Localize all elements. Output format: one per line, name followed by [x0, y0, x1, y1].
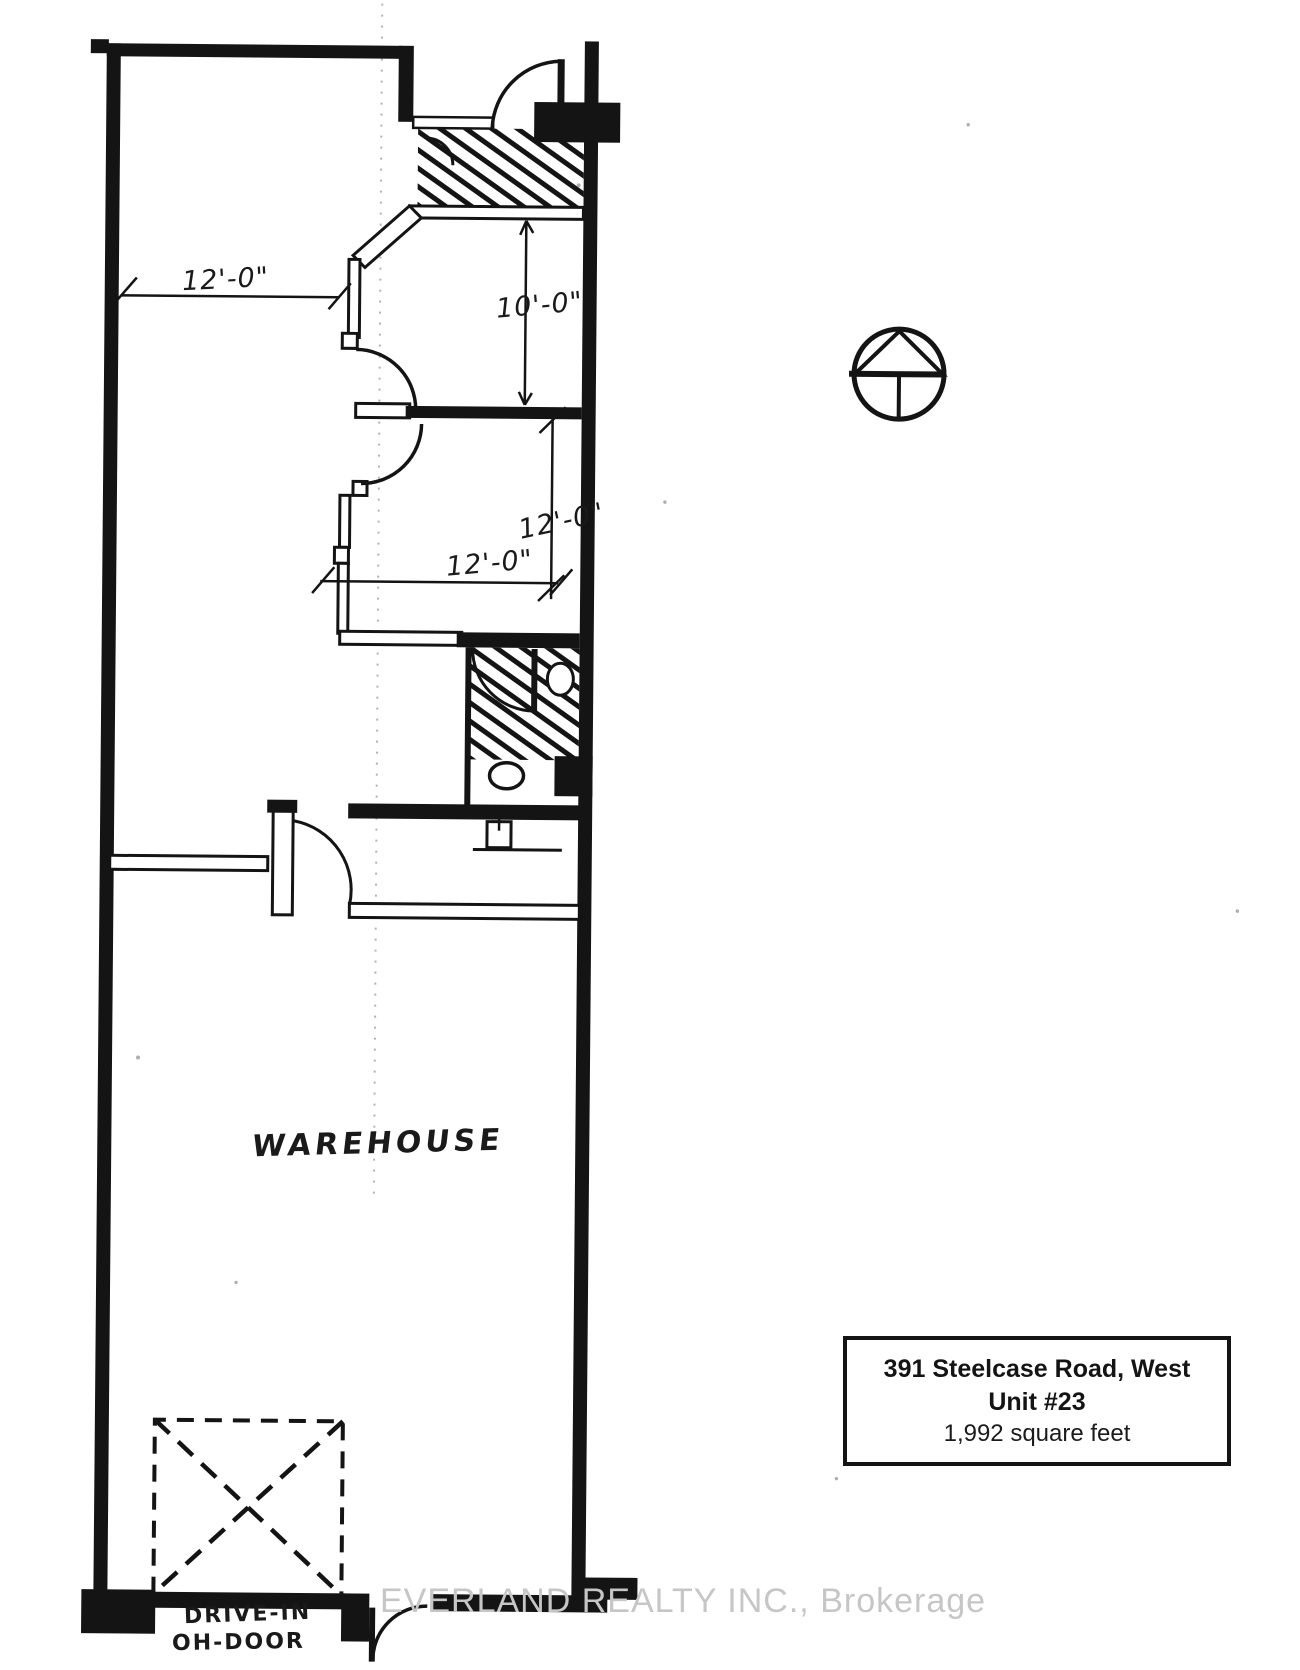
office2-left-wall-post	[334, 547, 348, 563]
left-wall	[93, 43, 121, 1599]
corridor-top-wall	[348, 803, 580, 820]
utility-nook-wall	[473, 849, 562, 850]
dim-office2-width-line	[320, 581, 558, 583]
drive-in-door-label-line2: OH-DOOR	[172, 1629, 305, 1656]
scan-crease-line	[372, 4, 384, 1198]
dimension-label-front-width: 12'-0"	[181, 262, 270, 298]
vestibule-bottom-wall	[409, 206, 583, 220]
toilet-fixture	[547, 663, 573, 695]
warehouse-room-label: WAREHOUSE	[250, 1123, 506, 1165]
top-right-wall-stub	[398, 46, 414, 122]
office2-left-wall-upper	[339, 495, 349, 547]
office1-left-wall	[348, 259, 360, 337]
office2-left-wall-lower	[338, 563, 349, 633]
property-info-box: 391 Steelcase Road, West Unit #23 1,992 …	[843, 1336, 1231, 1466]
north-arrow-icon	[849, 329, 946, 420]
property-address: 391 Steelcase Road, West	[884, 1354, 1191, 1384]
warehouse-north-wall-right	[349, 903, 579, 919]
washroom-door-leaf	[531, 649, 538, 711]
drive-in-door-label-line1: DRIVE-IN	[184, 1600, 312, 1629]
office2-bottom-wall	[340, 631, 462, 645]
north-arrow-triangle	[855, 331, 943, 375]
warehouse-north-wall-left	[110, 855, 268, 870]
property-area: 1,992 square feet	[944, 1420, 1131, 1449]
sink-fixture	[489, 763, 523, 789]
property-unit: Unit #23	[988, 1387, 1085, 1417]
brokerage-watermark: EVERLAND REALTY INC., Brokerage	[380, 1582, 986, 1621]
office1-door-hinge	[342, 333, 357, 348]
vestibule-thin-wall	[413, 117, 493, 129]
warehouse-door-jamb	[272, 803, 293, 915]
bottom-wall-pier	[341, 1593, 369, 1641]
scan-specks	[132, 116, 1246, 1484]
scanned-floor-plan-page: 12'-0" 10'-0" 12'-0" 12'-0" WAREHOUSE DR…	[0, 0, 1300, 1670]
top-wall	[107, 43, 403, 59]
washroom-top-wall	[457, 632, 580, 648]
washroom-left-wall	[464, 647, 471, 807]
warehouse-door-arc	[293, 821, 351, 905]
vestibule-hatch	[417, 128, 584, 209]
dim-front-width-line	[121, 295, 339, 297]
mid-wall-junction-block	[554, 756, 592, 796]
top-left-notch	[91, 39, 109, 53]
office1-door-arc	[356, 349, 417, 410]
chamfer-wall	[353, 205, 422, 268]
office-divider-stub	[356, 403, 410, 417]
office2-door-arc	[361, 423, 422, 484]
warehouse-door-jamb-cap	[267, 800, 297, 813]
